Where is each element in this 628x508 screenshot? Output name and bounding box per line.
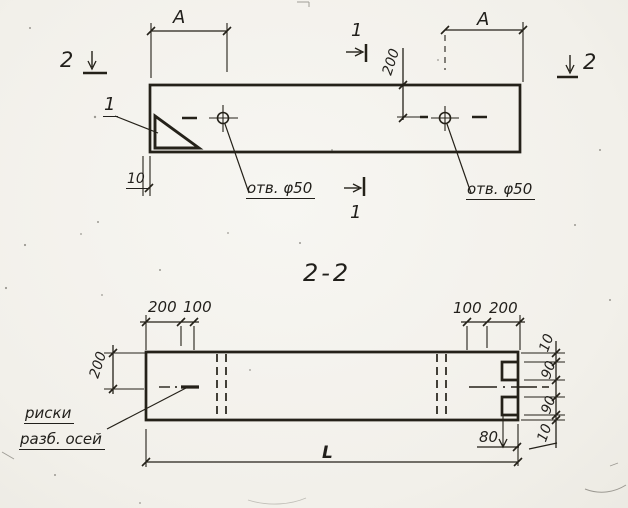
hole-right — [431, 106, 459, 131]
detail-callout-label: 1 — [103, 96, 118, 117]
section-marker-1-top — [346, 44, 366, 62]
dim-200-side — [104, 345, 145, 394]
dim-tl-100-label: 100 — [183, 300, 212, 315]
section-marker-2-left — [83, 51, 107, 73]
section1-top-label: 1 — [351, 22, 362, 40]
section-title: 2-2 — [303, 261, 351, 285]
section2-right-label: 2 — [583, 52, 596, 73]
dim-a-left — [147, 23, 231, 78]
section-marker-2-right — [557, 55, 578, 77]
notch-upper — [502, 362, 518, 380]
dim-tr-200-label: 200 — [489, 301, 518, 316]
dim-a-left-label: A — [173, 9, 185, 27]
dim-a-right — [441, 22, 527, 82]
hidden-hole-lines — [217, 354, 446, 419]
section1-bottom-label: 1 — [350, 204, 361, 222]
dim-80-label: 80 — [479, 430, 498, 445]
plan-beam-outline — [150, 85, 520, 152]
dim-length-label: L — [322, 445, 333, 462]
hole-right-label: отв. φ50 — [466, 182, 535, 200]
drawing-canvas: A A 1 1 2 2 1 200 10 отв. φ50 отв. φ50 2… — [0, 0, 628, 508]
detail-callout-leader — [115, 116, 158, 133]
dims-top-right — [461, 315, 525, 350]
hole-left — [209, 105, 238, 132]
section2-left-label: 2 — [60, 50, 73, 71]
axis-note-line1: риски — [24, 406, 74, 424]
scan-artifacts — [2, 2, 626, 504]
notch-lower — [502, 397, 518, 415]
dims-top-left — [140, 315, 199, 350]
dim-a-right-label: A — [477, 11, 489, 29]
dim-10-plan-label: 10 — [126, 172, 148, 189]
dim-tl-200-label: 200 — [148, 300, 177, 315]
section-beam-outline — [146, 352, 518, 420]
section-marker-1-bottom — [344, 177, 364, 196]
dim-tr-100-label: 100 — [453, 301, 482, 316]
corner-detail-triangle — [155, 116, 199, 148]
hole-left-label: отв. φ50 — [246, 181, 315, 199]
axis-note-line2: разб. осей — [19, 432, 105, 450]
